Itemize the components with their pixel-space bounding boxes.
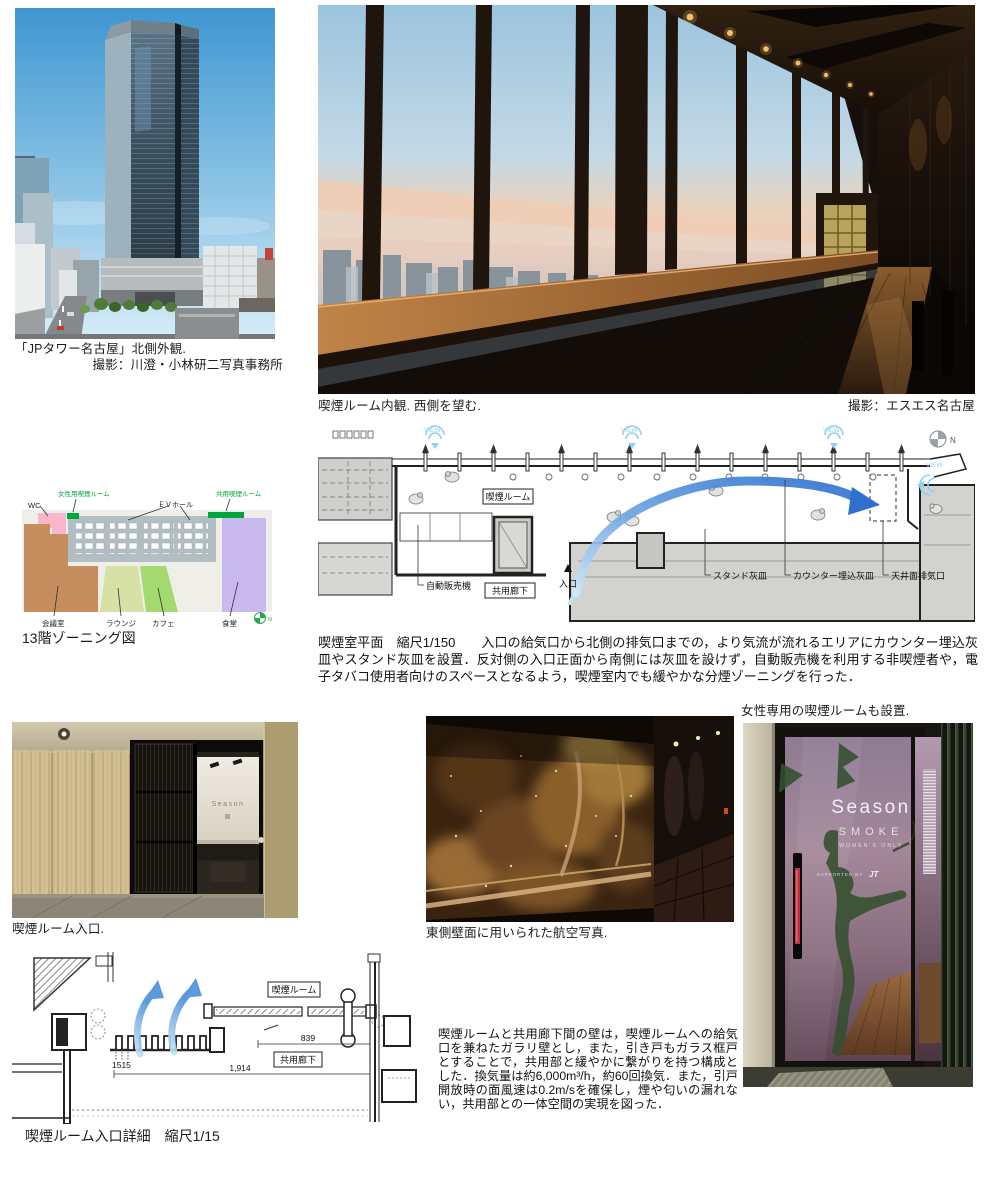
svg-text:N: N xyxy=(268,617,272,623)
lounge-label: ラウンジ xyxy=(106,619,136,628)
shared-smoking-zone xyxy=(208,512,244,518)
womens-caption: 女性専用の喫煙ルームも設置. xyxy=(741,704,991,720)
dim-louver: 1515 xyxy=(112,1060,131,1070)
entrance-photo: Season xyxy=(12,722,298,918)
entrance-caption: 喫煙ルーム入口. xyxy=(12,922,104,938)
interior-caption: 喫煙ルーム内観. 西側を望む. xyxy=(318,399,481,415)
meeting-label: 会議室 xyxy=(42,618,65,628)
door-handle xyxy=(258,837,264,843)
aerial-mural xyxy=(426,716,656,922)
ac-grille xyxy=(923,769,936,874)
magazine-page: 「JPタワー名古屋」北側外観. 撮影：川澄・小林研二写真事務所 xyxy=(0,0,1000,1180)
plan-caption-title: 喫煙室平面 縮尺1/150 xyxy=(318,635,455,650)
counter-ashtray-label: カウンター埋込灰皿 xyxy=(793,570,874,581)
door-handle xyxy=(793,853,802,959)
aerial-caption: 東側壁面に用いられた航空写真. xyxy=(426,926,607,942)
womens-label: 女性用喫煙ルーム xyxy=(58,489,110,498)
east-block xyxy=(920,485,975,621)
dining-label: 食堂 xyxy=(222,618,237,628)
wc-label: WC xyxy=(28,501,41,510)
exhaust-label: 天井面排気口 xyxy=(891,570,945,581)
tower-caption-line: 「JPタワー名古屋」北側外観. xyxy=(15,342,283,358)
carpet-floor xyxy=(12,894,264,918)
sign-note: WOMEN'S ONLY xyxy=(839,843,903,849)
detail-caption: 喫煙ルーム入口詳細 縮尺1/15 xyxy=(25,1126,220,1146)
sign-support: SUPPORTED BY xyxy=(817,872,863,877)
tower-caption: 「JPタワー名古屋」北側外観. 撮影：川澄・小林研二写真事務所 xyxy=(15,342,283,373)
jt-logo: JT xyxy=(869,870,879,879)
shared-label: 共用喫煙ルーム xyxy=(216,489,262,498)
vending-label: 自動販売機 xyxy=(426,580,471,591)
interior-caption-row: 喫煙ルーム内観. 西側を望む. 撮影：エスエス名古屋 xyxy=(318,399,975,415)
north-icon: N xyxy=(255,613,273,624)
right-wall xyxy=(264,722,298,918)
aerial-photo xyxy=(426,716,734,922)
sign-brand: Season xyxy=(831,797,910,818)
zoning-diagram: WC 女性用喫煙ルーム ＥＶホール 共用喫煙ルーム 会議室 ラウンジ カフェ 食… xyxy=(18,482,290,630)
womens-smoking-zone xyxy=(67,513,79,519)
cafe-label: カフェ xyxy=(152,619,175,628)
doorway-interior: Season xyxy=(197,752,259,894)
zoning-title: 13階ゾーニング図 xyxy=(22,628,136,648)
ev-hall-label: ＥＶホール xyxy=(158,501,193,509)
svg-text:VIEW: VIEW xyxy=(926,462,943,469)
interior-photo xyxy=(318,5,975,394)
svg-text:N: N xyxy=(950,436,956,445)
corridor-label: 共用廊下 xyxy=(280,1054,316,1065)
wall-description: 喫煙ルームと共用廊下間の壁は，喫煙ルームへの給気口を兼ねたガラリ壁とし，また，引… xyxy=(438,1028,738,1111)
plan-description: 喫煙室平面 縮尺1/150入口の給気口から北側の排気口までの，より気流が流れるエ… xyxy=(318,634,978,685)
dim-total: 1,914 xyxy=(229,1063,251,1073)
corridor-label: 共用廊下 xyxy=(492,585,528,596)
womens-room-photo: Season SMOKE WOMEN'S ONLY SUPPORTED BY J… xyxy=(743,723,973,1087)
glass-door-unit: Season xyxy=(130,740,266,896)
jp-tower xyxy=(101,20,203,306)
floor-plan: VIEW VIEW VIEW VIEW xyxy=(318,425,975,633)
dim-door: 839 xyxy=(301,1033,315,1043)
interior-credit: 撮影：エスエス名古屋 xyxy=(848,399,975,415)
lounge-zone xyxy=(100,566,144,612)
detail-drawing: 1515 839 1,914 喫煙ルーム 共用廊下 xyxy=(12,952,430,1124)
corridor-wall xyxy=(743,723,775,1087)
stand-ashtray-label: スタンド灰皿 xyxy=(713,570,767,581)
entrance-label: 入口 xyxy=(559,579,577,589)
interior-sign: Season xyxy=(212,801,245,808)
tower-photo xyxy=(15,8,275,339)
shaft-block xyxy=(494,517,532,573)
room-label: 喫煙ルーム xyxy=(272,984,317,995)
dining-zone xyxy=(222,518,266,612)
tower-credit: 撮影：川澄・小林研二写真事務所 xyxy=(15,358,283,374)
wood-paneling xyxy=(12,750,132,895)
corridor xyxy=(654,716,734,922)
sign-sub: SMOKE xyxy=(839,826,904,838)
vending-counter xyxy=(400,513,492,541)
exit-light xyxy=(724,808,728,814)
doorway-interior xyxy=(915,737,941,1061)
room-label: 喫煙ルーム xyxy=(486,491,531,502)
slat-screen xyxy=(941,723,973,1087)
